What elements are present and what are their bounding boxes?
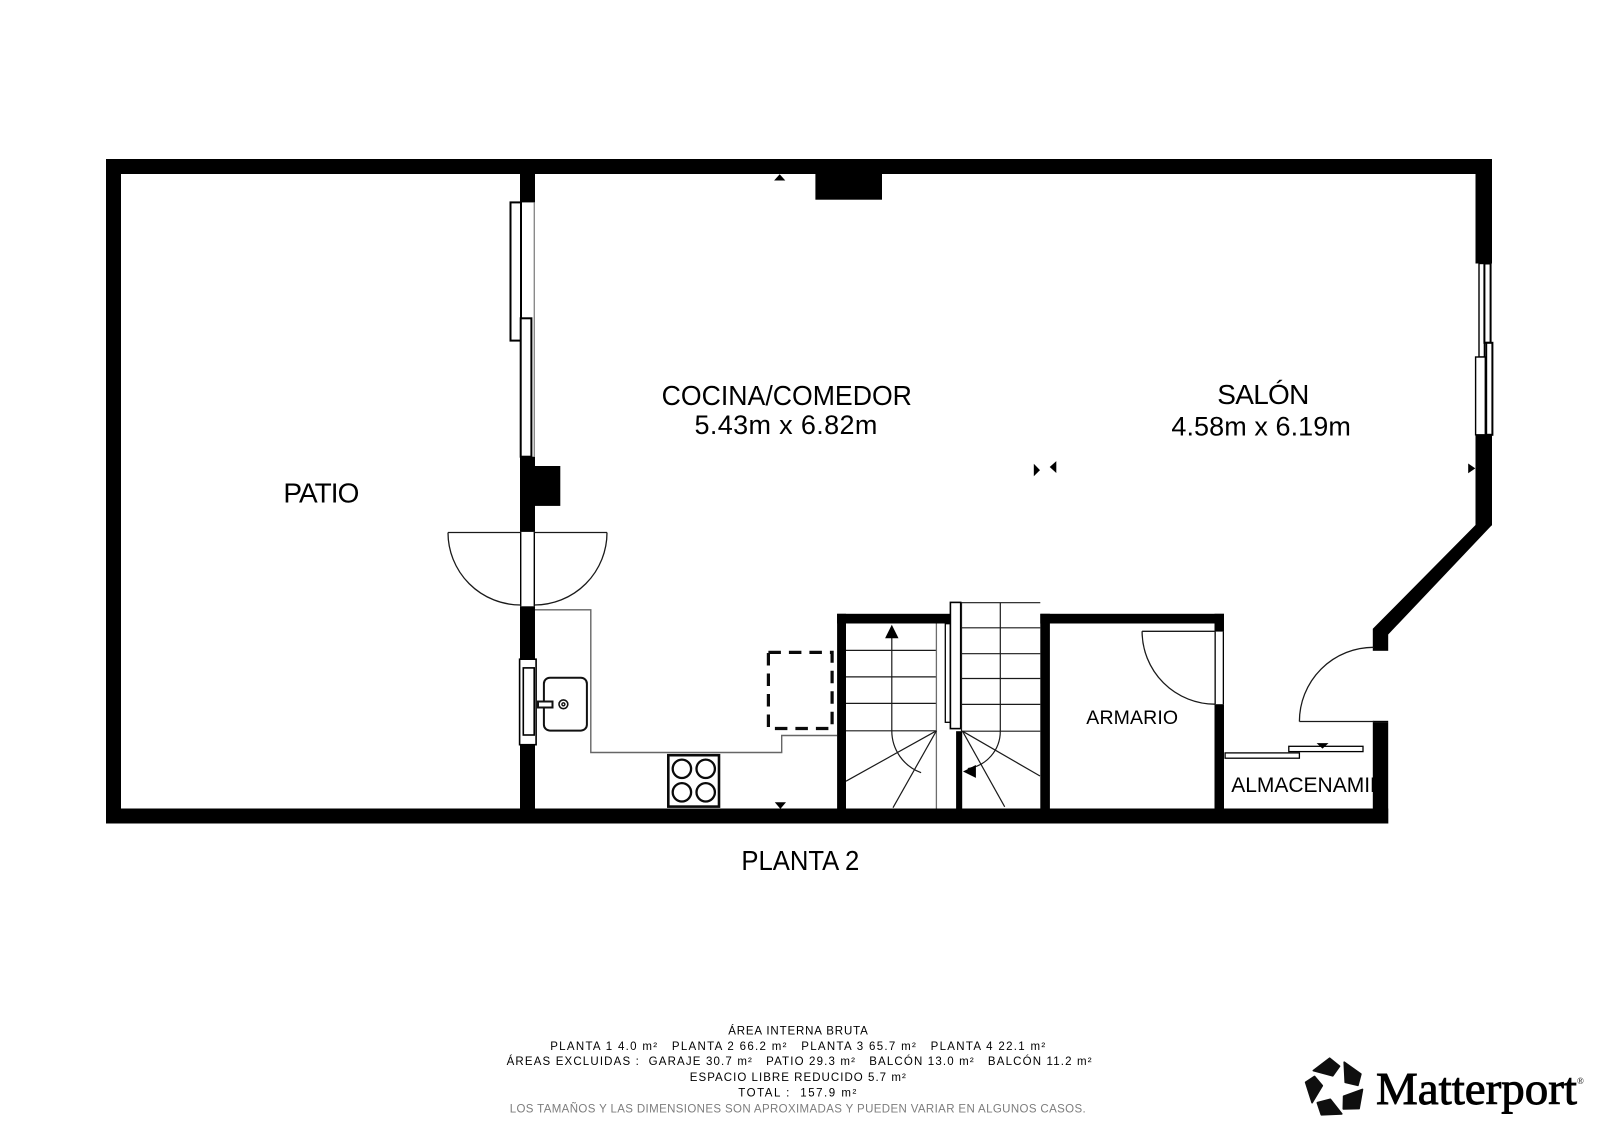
svg-text:COCINA/COMEDOR: COCINA/COMEDOR xyxy=(662,380,912,411)
svg-text:PLANTA 1 4.0 m² PLANTA 2 66.: PLANTA 1 4.0 m² PLANTA 2 66.2 m² PLANTA … xyxy=(550,1041,1045,1053)
svg-text:®: ® xyxy=(1577,1076,1584,1086)
svg-text:ARMARIO: ARMARIO xyxy=(1086,707,1178,729)
svg-text:ALMACENAMIENTO: ALMACENAMIENTO xyxy=(1231,774,1428,797)
svg-text:LOS TAMAÑOS Y LAS DIMENSIONES: LOS TAMAÑOS Y LAS DIMENSIONES SON APROXI… xyxy=(510,1102,1086,1115)
svg-text:PATIO: PATIO xyxy=(283,478,359,509)
svg-text:TOTAL : 157.9 m²: TOTAL : 157.9 m² xyxy=(738,1087,856,1099)
svg-text:ÁREAS EXCLUIDAS : GARAJE 30.7: ÁREAS EXCLUIDAS : GARAJE 30.7 m² PATIO 2… xyxy=(507,1055,1092,1068)
svg-text:SALÓN: SALÓN xyxy=(1217,379,1309,410)
svg-text:Matterport: Matterport xyxy=(1376,1063,1577,1114)
svg-text:5.43m x 6.82m: 5.43m x 6.82m xyxy=(694,410,877,440)
svg-text:ESPACIO LIBRE REDUCIDO 5.7 m²: ESPACIO LIBRE REDUCIDO 5.7 m² xyxy=(690,1072,906,1084)
svg-text:4.58m x 6.19m: 4.58m x 6.19m xyxy=(1171,411,1351,441)
svg-text:ÁREA INTERNA BRUTA: ÁREA INTERNA BRUTA xyxy=(728,1025,868,1038)
svg-text:PLANTA 2: PLANTA 2 xyxy=(741,845,859,876)
